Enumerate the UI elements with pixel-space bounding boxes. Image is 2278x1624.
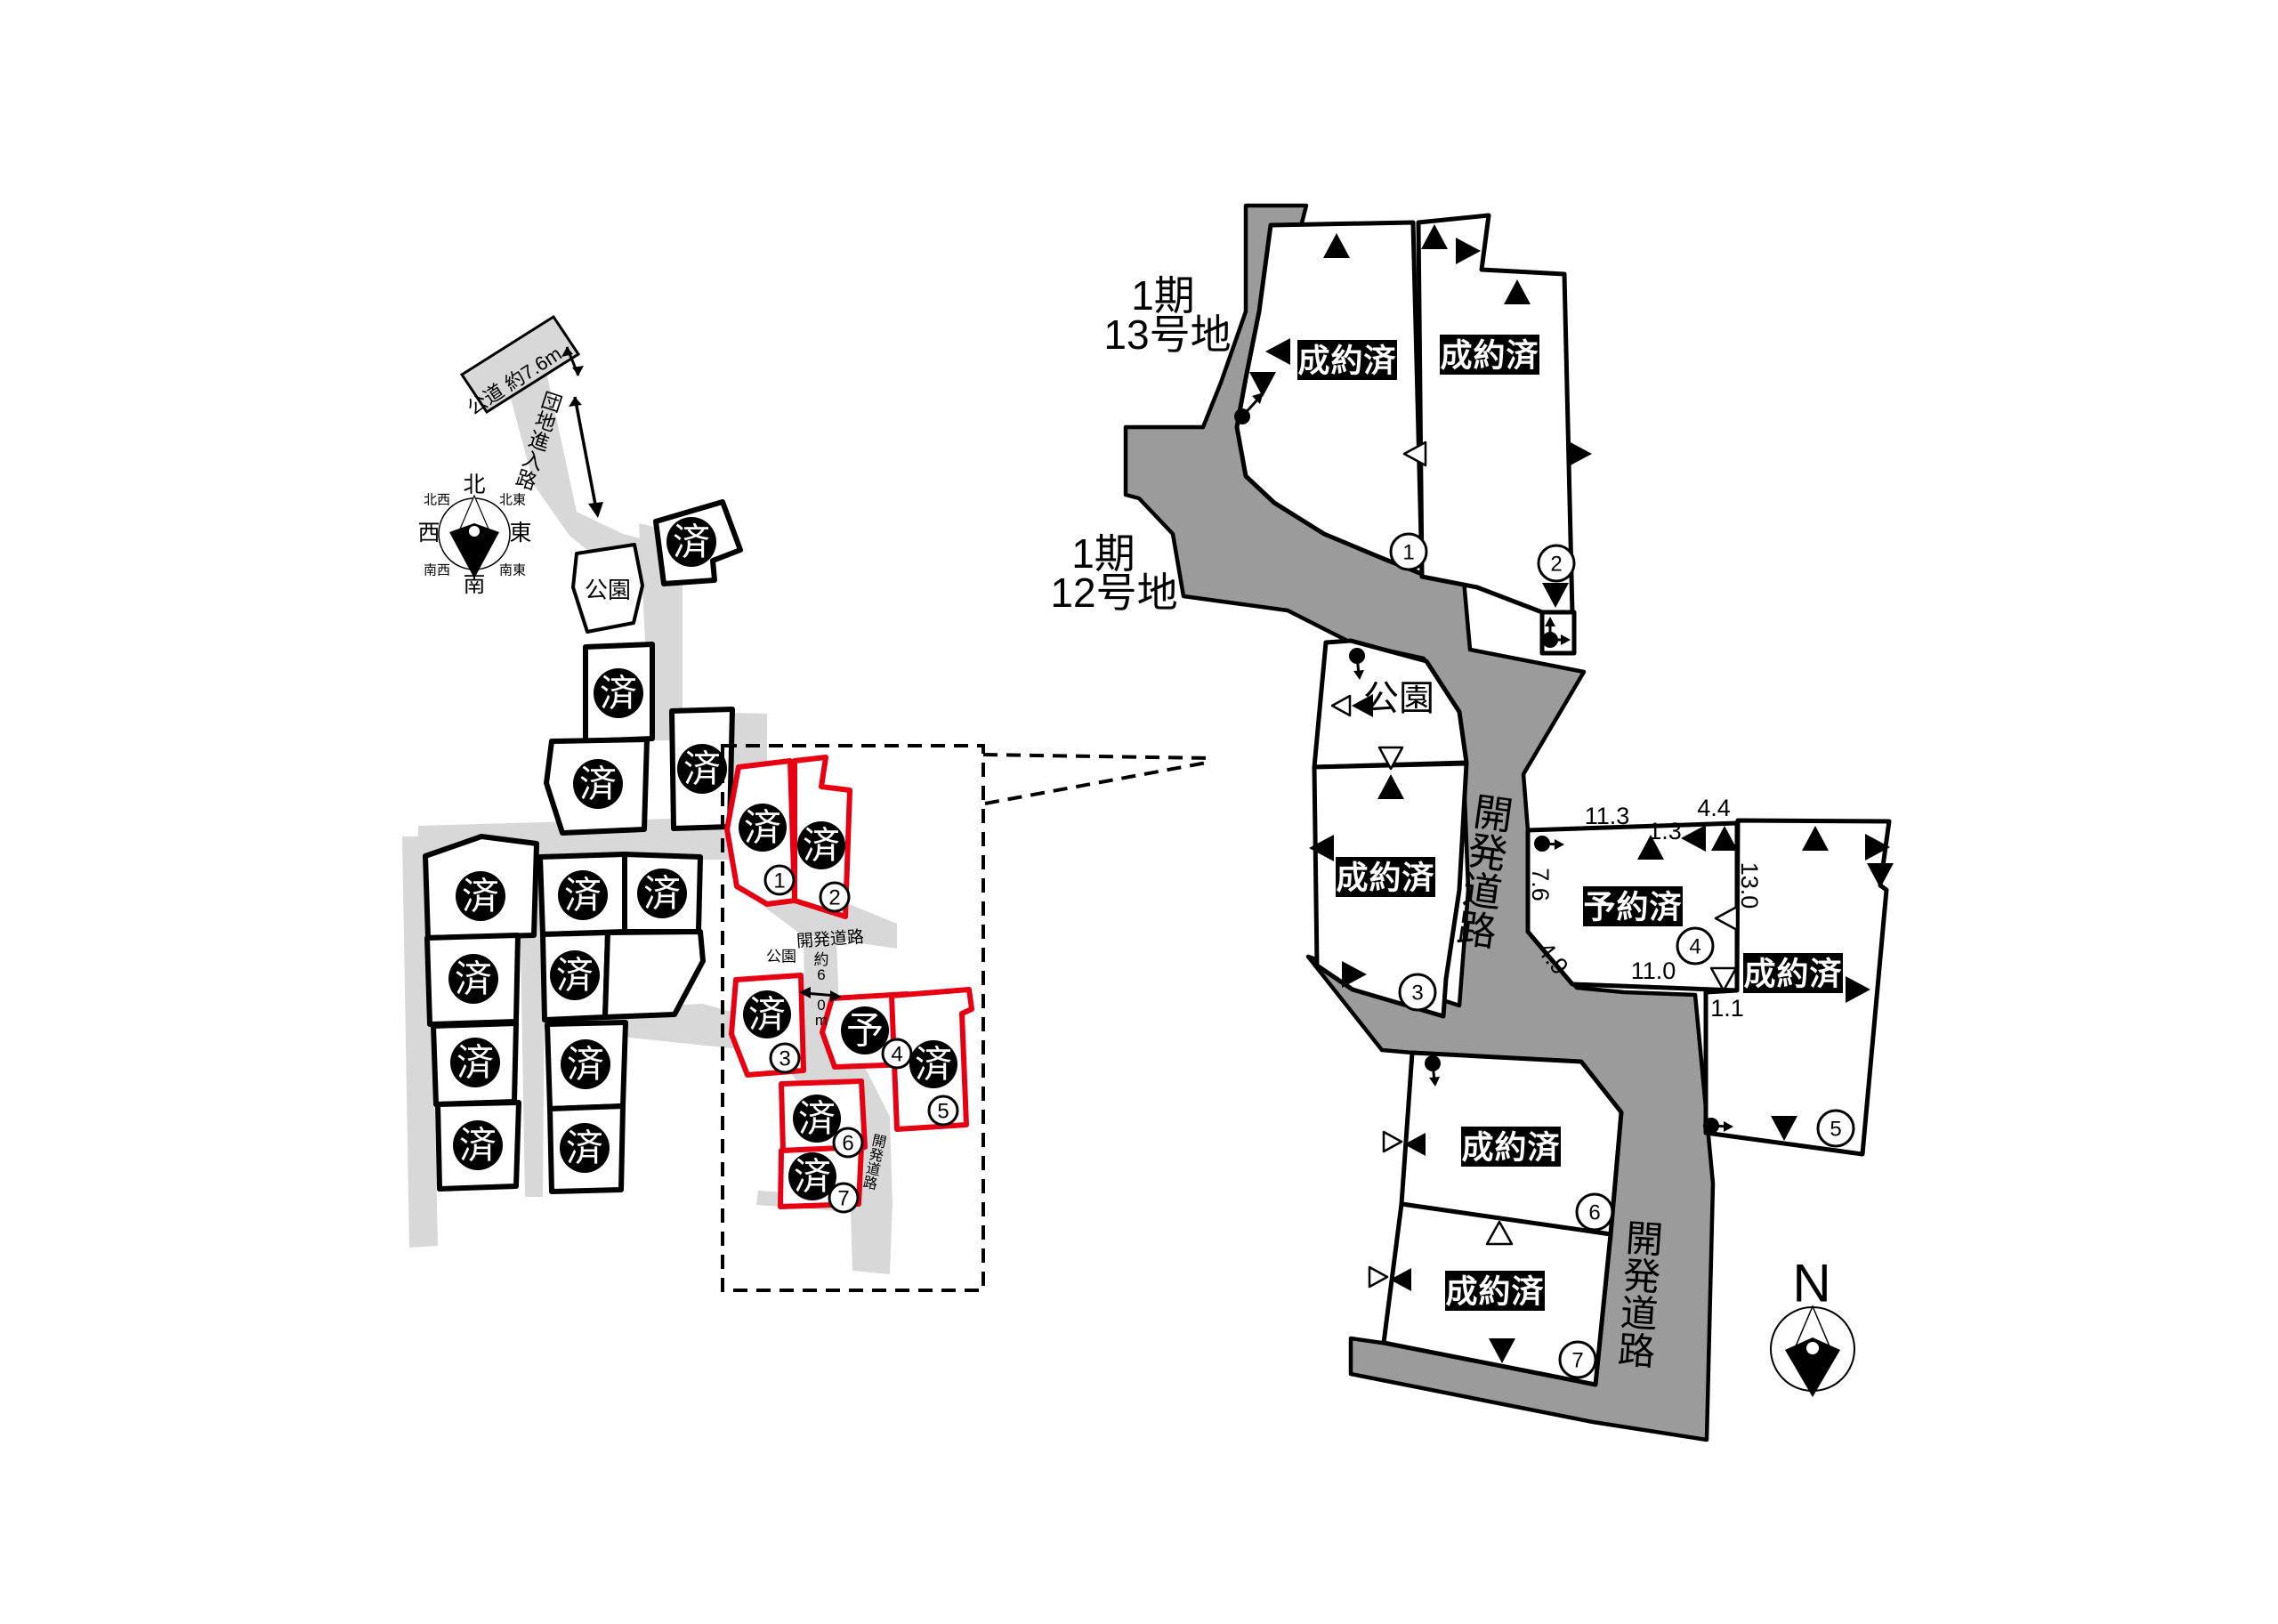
overview-map: 公道 約7.6m 団地進入路 北 南 西 東 北西 北東 南西 南東 xyxy=(402,317,1210,1290)
lot-number: 2 xyxy=(828,886,840,910)
sold-mark: 済 xyxy=(744,807,781,849)
sold-mark: 済 xyxy=(579,764,617,805)
lot-number: 1 xyxy=(1402,541,1414,565)
lot-map-page: 公道 約7.6m 団地進入路 北 南 西 東 北西 北東 南西 南東 xyxy=(0,0,2278,1624)
lot-unlabeled xyxy=(605,932,703,1017)
status-badge: 成約済 xyxy=(1445,1273,1544,1310)
block-label-13-line2: 13号地 xyxy=(1103,311,1231,358)
measurement-7-6: 7.6 xyxy=(1527,868,1554,901)
lot-number: 5 xyxy=(1830,1118,1841,1142)
status-badge: 成約済 xyxy=(1461,1129,1560,1166)
lot-number: 2 xyxy=(1550,553,1562,577)
measurement-11-3: 11.3 xyxy=(1585,803,1630,829)
measurement-13-0: 13.0 xyxy=(1736,862,1763,909)
compass-w: 西 xyxy=(417,521,440,545)
triangle-right-white-icon xyxy=(1369,1267,1387,1287)
lot-number: 7 xyxy=(1571,1349,1583,1373)
sold-mark: 済 xyxy=(459,1125,497,1167)
leader-line-bottom xyxy=(985,763,1207,804)
status-badge: 成約済 xyxy=(1297,343,1396,379)
lot-number: 7 xyxy=(837,1187,849,1211)
lot-number: 6 xyxy=(1588,1201,1600,1225)
detail-map: 1期 13号地 1期 12号地 公園 成約済 成約済 成約済 予約済 成約済 成… xyxy=(1050,206,1894,1440)
status-badge: 予約済 xyxy=(1583,889,1682,925)
park-label-detail: 公園 xyxy=(1363,679,1434,718)
lot-number: 3 xyxy=(1411,982,1423,1006)
compass-n: 北 xyxy=(463,473,485,497)
compass-nw: 北西 xyxy=(424,493,450,508)
sold-mark: 済 xyxy=(462,876,499,917)
sold-mark: 済 xyxy=(915,1044,952,1086)
compass-overview: 北 南 西 東 北西 北東 南西 南東 xyxy=(417,473,531,597)
sold-mark: 済 xyxy=(683,748,721,790)
north-label: N xyxy=(1792,1254,1830,1313)
sold-mark: 済 xyxy=(456,1042,494,1084)
compass-detail: N xyxy=(1771,1254,1854,1398)
compass-se: 南東 xyxy=(499,563,526,578)
park-label-overview: 公園 xyxy=(585,577,631,603)
compass-s: 南 xyxy=(463,572,485,597)
lot-number: 4 xyxy=(891,1043,902,1067)
sold-mark: 済 xyxy=(566,1127,603,1169)
measurement-4-4: 4.4 xyxy=(1697,795,1731,821)
sold-mark: 済 xyxy=(567,1044,604,1086)
lot-number: 6 xyxy=(842,1132,853,1156)
sold-mark: 済 xyxy=(643,873,681,915)
sold-mark: 済 xyxy=(556,955,594,997)
sold-mark: 済 xyxy=(673,521,710,563)
current-lots-overview: 済 済 済 予 済 済 済 1 2 3 4 5 6 7 xyxy=(727,757,972,1212)
sold-mark: 済 xyxy=(600,673,637,715)
compass-e: 東 xyxy=(509,521,531,545)
park-small-label: 公園 xyxy=(766,949,796,966)
status-badge: 成約済 xyxy=(1743,956,1842,992)
sold-mark: 済 xyxy=(798,1098,836,1140)
sold-mark: 済 xyxy=(748,994,786,1036)
sold-mark: 済 xyxy=(564,875,602,917)
status-badge: 成約済 xyxy=(1440,337,1539,374)
block-label-12-line2: 12号地 xyxy=(1050,570,1177,616)
reserved-mark: 予 xyxy=(846,1010,884,1052)
triangle-right-icon xyxy=(1567,440,1592,467)
sold-mark: 済 xyxy=(803,825,840,867)
lot-number: 3 xyxy=(779,1047,790,1071)
lot-map-drawing: 公道 約7.6m 団地進入路 北 南 西 東 北西 北東 南西 南東 xyxy=(0,0,2278,1624)
lot-number: 4 xyxy=(1689,935,1700,959)
compass-sw: 南西 xyxy=(424,563,450,578)
status-badge: 成約済 xyxy=(1336,860,1434,896)
lot-number: 1 xyxy=(773,869,785,893)
sold-mark: 済 xyxy=(455,958,492,1000)
compass-ne: 北東 xyxy=(499,493,526,508)
measurement-11-0: 11.0 xyxy=(1631,957,1676,984)
lot-number: 5 xyxy=(937,1100,949,1124)
triangle-right-white-icon xyxy=(1384,1132,1402,1151)
sold-mark: 済 xyxy=(794,1156,831,1198)
leader-line-top xyxy=(983,755,1210,758)
measurement-1-1: 1.1 xyxy=(1710,995,1744,1022)
